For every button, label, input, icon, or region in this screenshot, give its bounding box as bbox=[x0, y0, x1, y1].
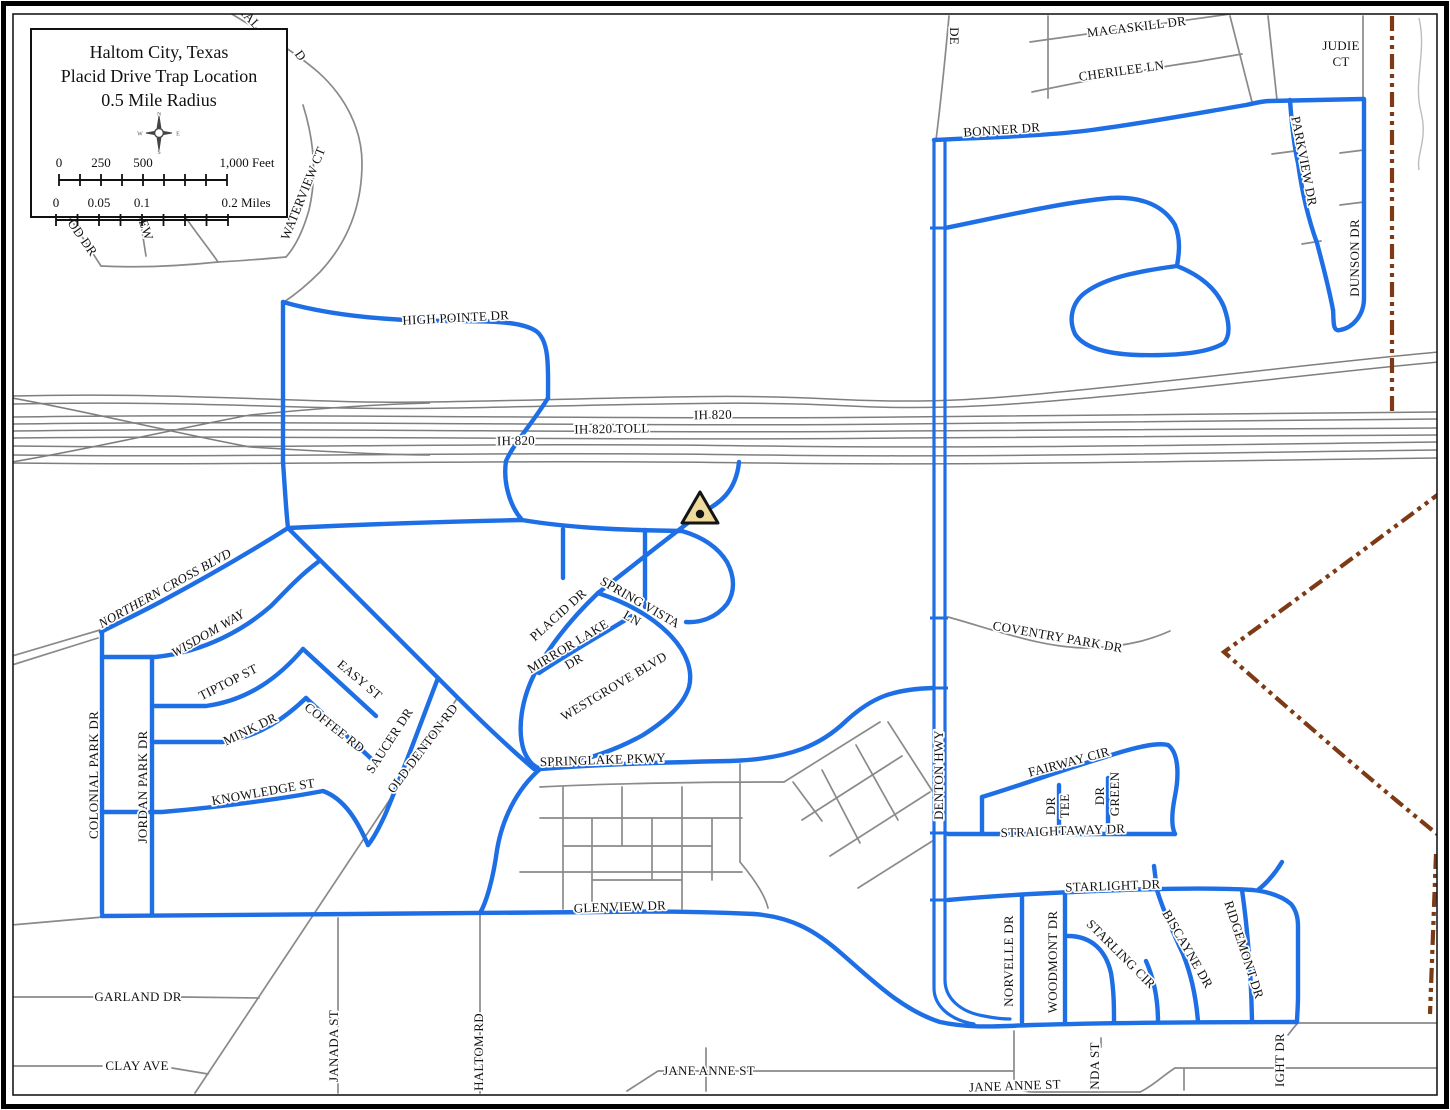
fairway-cir-label: FAIRWAY CIR bbox=[1027, 744, 1112, 780]
nda-st-label: NDA ST bbox=[1087, 1042, 1102, 1089]
woodmont-dr-label: WOODMONT DR bbox=[1045, 911, 1060, 1014]
janada-st-label: JANADA ST bbox=[326, 1010, 341, 1082]
springlake-pkwy-label: SPRINGLAKE PKWY bbox=[540, 750, 667, 769]
svg-text:500: 500 bbox=[133, 155, 153, 170]
norvelle-dr-label: NORVELLE DR bbox=[1001, 915, 1016, 1007]
northern-cross-blvd-label: NORTHERN CROSS BLVD bbox=[95, 545, 234, 631]
ih-820-label: IH 820 bbox=[694, 407, 732, 423]
svg-text:250: 250 bbox=[91, 155, 111, 170]
svg-text:1,000 Feet: 1,000 Feet bbox=[220, 155, 275, 170]
svg-text:0.2 Miles: 0.2 Miles bbox=[221, 195, 270, 210]
svg-text:S: S bbox=[157, 150, 160, 154]
colonial-park-dr-label: COLONIAL PARK DR bbox=[86, 711, 101, 839]
dr-label: DR bbox=[1092, 787, 1107, 806]
macaskill-dr-label: MACASKILL DR bbox=[1086, 13, 1187, 40]
ct-label: CT bbox=[1332, 54, 1349, 69]
svg-text:W: W bbox=[137, 132, 143, 138]
haltom-rd-label: HALTOM RD bbox=[471, 1013, 486, 1091]
coffee-rd-label: COFFEE RD bbox=[302, 699, 368, 755]
spring-vista-label: SPRING VISTA bbox=[598, 573, 683, 631]
high-pointe-dr-label: HIGH POINTE DR bbox=[402, 307, 509, 328]
dr-label: DR bbox=[1043, 797, 1058, 816]
compass-rose-icon: N E S W bbox=[133, 112, 185, 154]
jane-anne-st-label: JANE ANNE ST bbox=[663, 1063, 755, 1078]
denton-hwy-label: DENTON HWY bbox=[931, 730, 946, 820]
parkview-dr-label: PARKVIEW DR bbox=[1288, 115, 1320, 207]
straightaway-dr-label: STRAIGHTAWAY DR bbox=[1000, 821, 1125, 840]
judie-label: JUDIE bbox=[1322, 38, 1359, 53]
svg-text:0.05: 0.05 bbox=[88, 195, 111, 210]
svg-text:0.1: 0.1 bbox=[134, 195, 150, 210]
svg-text:E: E bbox=[176, 132, 180, 138]
scalebar-miles: 0 0.05 0.1 0.2 Miles bbox=[34, 194, 284, 234]
title-box: Haltom City, Texas Placid Drive Trap Loc… bbox=[30, 28, 288, 218]
svg-text:0: 0 bbox=[56, 155, 63, 170]
jane-anne-st-label: JANE ANNE ST bbox=[969, 1076, 1061, 1094]
map-title-line3: 0.5 Mile Radius bbox=[32, 88, 286, 112]
garland-dr-label: GARLAND DR bbox=[94, 989, 181, 1004]
boundary-lines bbox=[1224, 16, 1444, 1014]
starlight-dr-label: STARLIGHT DR bbox=[1065, 876, 1161, 894]
mink-dr-label: MINK DR bbox=[221, 710, 280, 749]
de-label: DE bbox=[947, 27, 962, 45]
jordan-park-dr-label: JORDAN PARK DR bbox=[135, 731, 150, 844]
green-label: GREEN bbox=[1107, 771, 1122, 816]
ih-820-toll-label: IH 820 TOLL bbox=[574, 420, 649, 436]
scalebar-feet: 0 250 500 1,000 Feet bbox=[34, 154, 284, 194]
map-title-line2: Placid Drive Trap Location bbox=[32, 64, 286, 88]
ih-820-label: IH 820 bbox=[497, 433, 535, 449]
knowledge-st-label: KNOWLEDGE ST bbox=[210, 775, 315, 808]
ight-dr-label: IGHT DR bbox=[1272, 1033, 1287, 1087]
tiptop-st-label: TIPTOP ST bbox=[196, 661, 260, 703]
dunson-dr-label: DUNSON DR bbox=[1347, 219, 1362, 297]
svg-text:N: N bbox=[157, 112, 162, 118]
coventry-park-dr-label: COVENTRY PARK DR bbox=[992, 618, 1124, 656]
cherilee-ln-label: CHERILEE LN bbox=[1078, 57, 1166, 84]
map-page: HALDOD DREWWATERVIEW CTHIGH POINTE DRIH … bbox=[0, 0, 1450, 1110]
tee-label: TEE bbox=[1057, 794, 1072, 819]
map-title-line1: Haltom City, Texas bbox=[32, 40, 286, 64]
biscayne-dr-label: BISCAYNE DR bbox=[1159, 907, 1216, 991]
starling-cir-label: STARLING CIR bbox=[1084, 916, 1159, 991]
d-label: D bbox=[292, 47, 310, 64]
easy-st-label: EASY ST bbox=[335, 657, 386, 703]
svg-text:0: 0 bbox=[53, 195, 60, 210]
clay-ave-label: CLAY AVE bbox=[105, 1058, 168, 1073]
